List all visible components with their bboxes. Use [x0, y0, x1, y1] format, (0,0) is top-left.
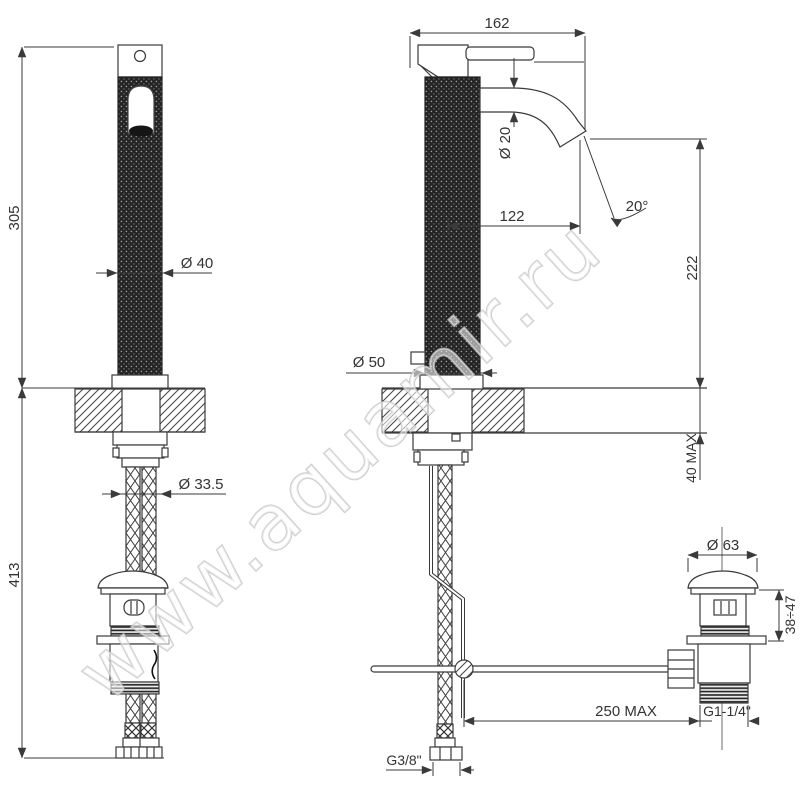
dim-body-diameter: Ø 40	[181, 255, 214, 272]
drain-cap	[688, 571, 758, 588]
dim-overall-depth: 162	[484, 15, 509, 32]
drain-thread	[700, 683, 748, 703]
hose-nut-side	[430, 747, 462, 760]
dim-front-height-below: 413	[6, 562, 23, 587]
dim-supply-thread: G3/8"	[386, 752, 421, 768]
faucet-technical-drawing: 305 413 Ø 40 Ø 33.5 162 Ø 20 122 20° 222…	[0, 0, 800, 800]
horizontal-rod	[371, 666, 670, 672]
handle-lever	[466, 47, 534, 60]
supply-hose-left	[126, 467, 140, 575]
handle-head	[418, 45, 468, 77]
dim-spout-angle: 20°	[626, 198, 649, 215]
dim-drain-adjust-range: 38÷47	[782, 595, 798, 634]
dim-spout-reach: 122	[499, 208, 524, 225]
base-flange-front	[112, 375, 168, 389]
supply-hose-right	[142, 467, 156, 575]
drawing-canvas: 305 413 Ø 40 Ø 33.5 162 Ø 20 122 20° 222…	[0, 0, 800, 800]
supply-hose-side	[438, 465, 452, 724]
dim-waste-thread: G1-1/4"	[703, 703, 751, 719]
dim-front-height-above: 305	[6, 205, 23, 230]
dim-spout-diameter: Ø 20	[497, 127, 514, 160]
dim-hole-diameter: Ø 33.5	[178, 476, 223, 493]
rod-clamp	[455, 660, 473, 678]
spout	[480, 88, 586, 147]
dim-rod-reach-max: 250 MAX	[595, 703, 657, 720]
dim-deck-max: 40 MAX	[683, 432, 699, 482]
dim-spout-height: 222	[684, 255, 701, 280]
deck-section-side-right	[472, 389, 524, 432]
dim-drain-cap-diameter: Ø 63	[707, 537, 740, 554]
deck-section-left	[75, 389, 122, 432]
deck-section-right	[160, 389, 205, 432]
